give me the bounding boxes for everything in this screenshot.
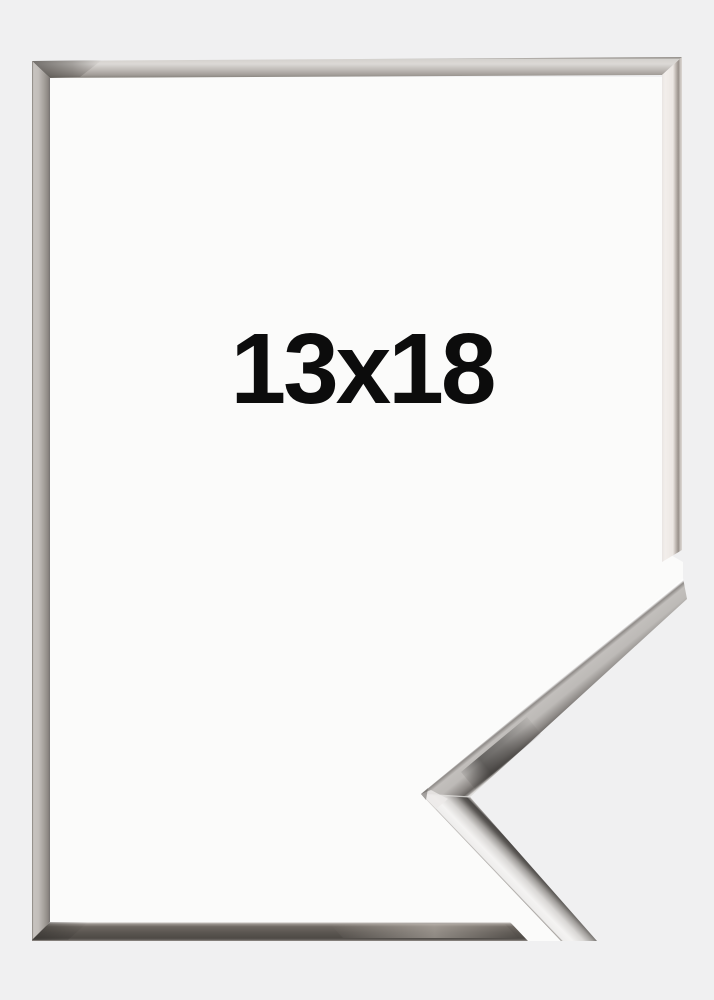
bottom-strip-sheen: [330, 924, 518, 938]
frame-illustration: 13x18: [0, 0, 714, 1000]
frame-right-strip: [662, 57, 682, 562]
size-label: 13x18: [230, 313, 493, 425]
product-photo-silver-frame: 13x18: [0, 0, 714, 1000]
frame-left-strip: [32, 61, 50, 940]
